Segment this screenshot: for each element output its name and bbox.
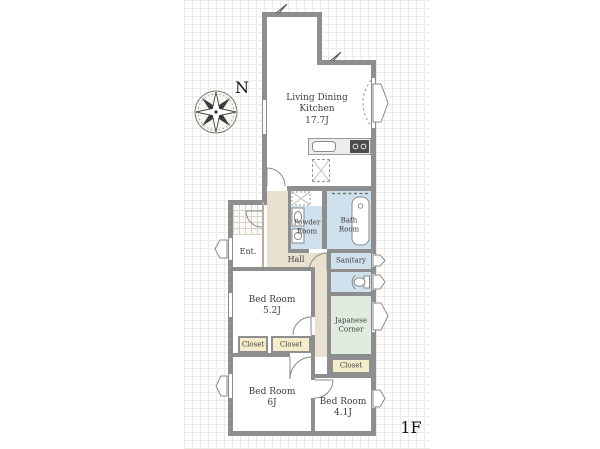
window <box>228 374 233 398</box>
balcony-opening <box>371 78 376 128</box>
door-opening <box>290 353 311 357</box>
stove-icon <box>350 140 369 153</box>
wall <box>317 12 322 65</box>
wall <box>331 269 371 272</box>
label-powder-room: Powder Room <box>294 218 321 236</box>
wall <box>322 191 327 249</box>
wall <box>311 374 376 378</box>
window <box>371 302 376 332</box>
door-opening <box>267 186 287 191</box>
label-japanese-corner: Japanese Corner <box>335 316 367 334</box>
room-toilet <box>331 272 371 292</box>
wall <box>228 200 233 436</box>
floor-plan: Living Dining Kitchen 17.7J Powder Room … <box>0 0 600 449</box>
window <box>371 254 376 267</box>
label-closet-right: Closet <box>340 362 362 371</box>
wall <box>228 431 376 436</box>
window <box>228 293 233 317</box>
label-bath-room: Bath Room <box>339 216 359 234</box>
label-sanitary: Sanitary <box>336 257 366 266</box>
compass-north-label: N <box>235 78 249 98</box>
window <box>371 390 376 408</box>
wall <box>327 292 376 296</box>
window <box>262 100 267 134</box>
door-opening <box>311 317 315 335</box>
wall <box>311 267 315 431</box>
wall <box>327 354 376 358</box>
wall <box>288 249 376 253</box>
label-bedroom-41: Bed Room 4.1J <box>320 397 367 420</box>
floor-base <box>262 12 322 65</box>
door-opening <box>311 380 315 398</box>
label-entrance: Ent. <box>240 247 257 257</box>
entrance-step-edge <box>262 202 264 267</box>
refrigerator-space-icon <box>312 159 330 182</box>
door-opening <box>309 249 327 253</box>
entrance-door-opening <box>228 238 233 260</box>
label-ldk: Living Dining Kitchen 17.7J <box>286 93 348 127</box>
window <box>371 274 376 290</box>
label-hall: Hall <box>288 255 305 265</box>
entrance-tile-floor <box>233 204 262 235</box>
corridor <box>315 253 327 357</box>
wall <box>228 267 315 271</box>
label-bedroom-52: Bed Room 5.2J <box>249 295 296 318</box>
label-bedroom-6: Bed Room 6J <box>249 387 296 410</box>
label-closet-mid: Closet <box>280 341 302 350</box>
floor-label: 1F <box>400 418 421 438</box>
wall <box>317 60 376 65</box>
wall <box>262 12 322 17</box>
kitchen-sink-icon <box>312 141 336 152</box>
label-closet-left: Closet <box>242 341 264 350</box>
wall <box>288 191 291 253</box>
